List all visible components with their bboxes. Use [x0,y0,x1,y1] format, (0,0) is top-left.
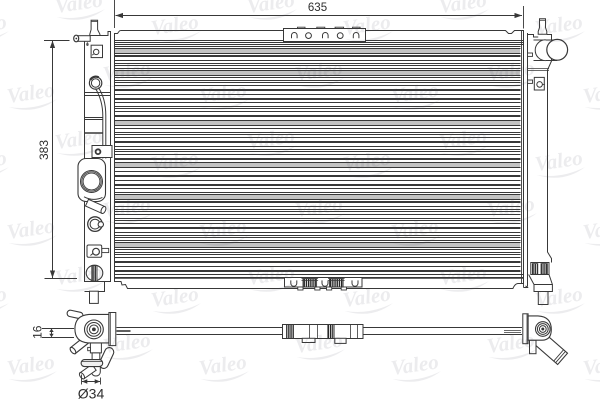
svg-text:635: 635 [308,2,327,14]
svg-text:383: 383 [37,140,51,160]
svg-text:Ø34: Ø34 [78,386,105,400]
svg-text:16: 16 [31,325,45,339]
